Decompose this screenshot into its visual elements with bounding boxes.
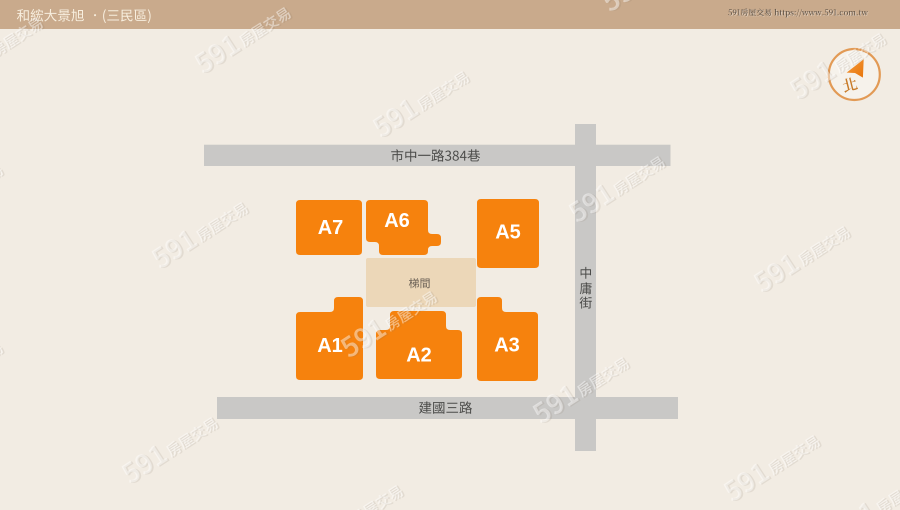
svg-text:A3: A3: [494, 335, 520, 357]
svg-text:A6: A6: [384, 210, 410, 232]
svg-text:A7: A7: [318, 217, 344, 239]
svg-text:A1: A1: [317, 335, 343, 357]
svg-text:A2: A2: [406, 345, 432, 367]
svg-text:A5: A5: [495, 222, 521, 244]
